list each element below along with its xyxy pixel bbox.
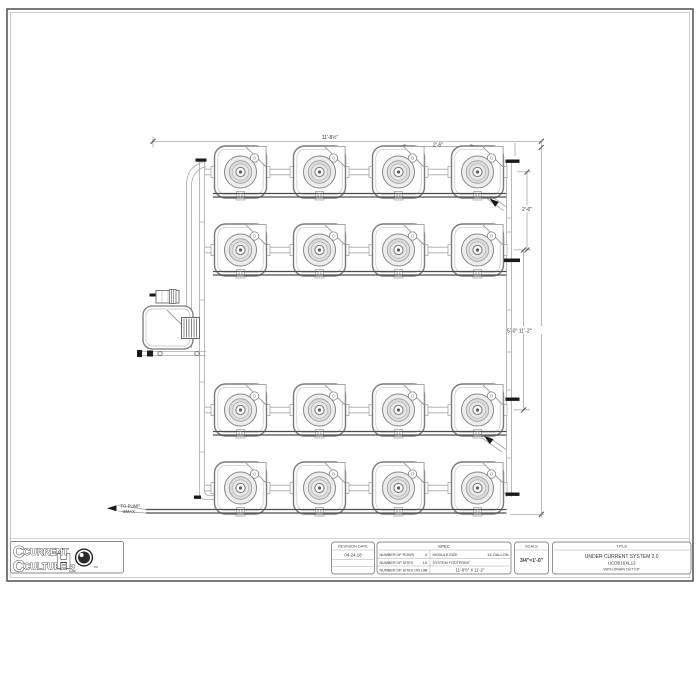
manifold-tabs — [237, 192, 482, 515]
spec-value-module-size: 13-GALLON — [487, 552, 509, 557]
manifold-port — [397, 272, 400, 275]
dim-row-spacing: 2'-6" — [522, 207, 532, 213]
spec-label-module-size: MODULE SIZE — [433, 553, 459, 557]
to-pump-callout: TO PUMP &MAX — [107, 504, 146, 515]
revision-header: REVISION DATE — [338, 544, 368, 549]
logo: C CURRENT C CULTURE H 2 TM — [11, 542, 124, 576]
model-number: UCDB16XL13 — [608, 560, 636, 565]
title-header: TITLE — [616, 544, 627, 549]
revision-date: 04-24-18 — [344, 552, 362, 557]
manifold-fittings — [239, 194, 479, 513]
to-pump-arrow-icon — [107, 505, 117, 511]
pipes — [187, 160, 512, 500]
scale-header: SCALE — [525, 544, 538, 549]
dim-overall-width: 11'-8½" — [322, 134, 339, 141]
title-block: REVISION DATE 04-24-18 SPEC NUMBER OF RO… — [11, 542, 692, 576]
spec-box: SPEC NUMBER OF ROWS 4 NUMBER OF SITES 16… — [377, 542, 511, 574]
drawing-title: UNDER CURRENT SYSTEM 2.0 — [585, 554, 659, 560]
drawing-sheet: 11'-8½" 2'-6" 2'-6" 5'-0" 11'-2" — [0, 0, 700, 700]
dim-module-spacing: 2'-6" — [433, 143, 443, 149]
to-pump-label-2: &MAX — [123, 509, 135, 514]
grow-modules — [211, 146, 507, 516]
sheet-border — [7, 9, 693, 581]
spec-label-footprint: SYSTEM FOOTPRINT — [433, 561, 471, 565]
manifold-port — [476, 272, 479, 275]
manifold-port — [239, 510, 242, 513]
revision-box: REVISION DATE 04-24-18 — [332, 542, 375, 574]
scale-value: 3/4"=1'-0" — [520, 558, 544, 564]
dim-center-height: 5'-0" 11'-2" — [507, 329, 532, 335]
title-subnote: WITH DRAIN OUT KIT — [603, 567, 640, 571]
logo-tm: TM — [94, 565, 99, 569]
spec-value-sites: 16 — [423, 560, 427, 565]
manifold-port — [318, 272, 321, 275]
fittings — [194, 159, 520, 499]
title-box: TITLE UNDER CURRENT SYSTEM 2.0 UCDB16XL1… — [553, 542, 692, 574]
manifold-port — [397, 510, 400, 513]
manifold-port — [318, 432, 321, 435]
manifold-port — [239, 272, 242, 275]
logo-sub2: 2 — [70, 563, 76, 575]
epicenter-cluster — [137, 290, 206, 358]
manifold-port — [239, 432, 242, 435]
manifold-port — [397, 432, 400, 435]
spec-label-sites: NUMBER OF SITES — [380, 561, 414, 565]
manifold-port — [239, 194, 242, 197]
spec-header: SPEC — [438, 544, 450, 549]
scale-box: SCALE 3/4"=1'-0" — [515, 542, 549, 574]
filter — [182, 318, 200, 339]
manifold-port — [318, 194, 321, 197]
spec-label-rows: NUMBER OF ROWS — [380, 553, 415, 557]
manifold-port — [397, 194, 400, 197]
cad-drawing: 11'-8½" 2'-6" 2'-6" 5'-0" 11'-2" — [0, 0, 700, 700]
to-pump-label: TO PUMP — [121, 504, 141, 509]
manifold-port — [476, 510, 479, 513]
spec-label-sites-lid: NUMBER OF SITES ON LID — [380, 568, 427, 572]
manifold-port — [318, 510, 321, 513]
manifold-port — [476, 432, 479, 435]
manifold-port — [476, 194, 479, 197]
spec-value-footprint: 11'-8½" X 11'-2" — [456, 567, 485, 572]
